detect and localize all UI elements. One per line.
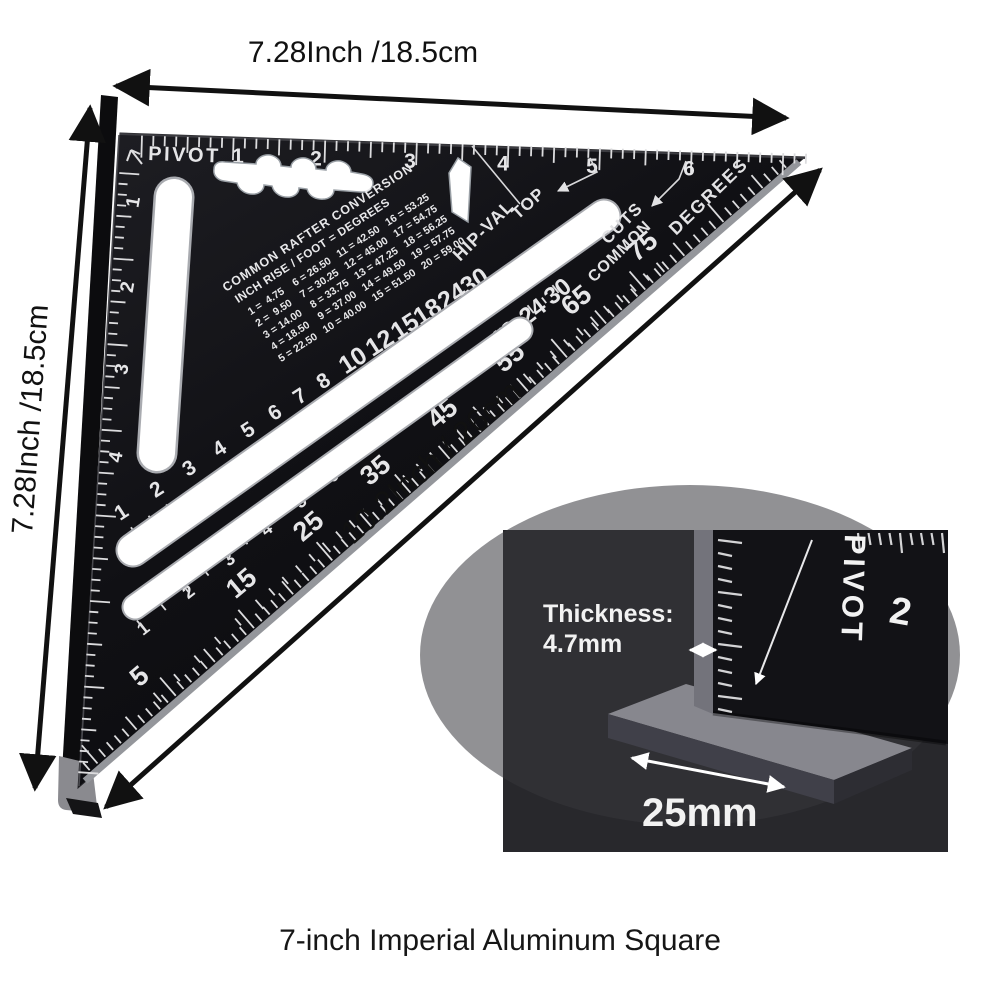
tick [108, 334, 117, 335]
tick [82, 719, 91, 720]
tick [81, 729, 96, 730]
top-ruler-number: 4 [497, 152, 509, 175]
tick [105, 387, 120, 388]
tick [92, 569, 101, 570]
thickness-value: 4.7mm [543, 630, 622, 658]
tick [104, 398, 113, 399]
tick [94, 548, 103, 549]
top-dimension-label: 7.28Inch /18.5cm [248, 36, 478, 69]
caption: 7-inch Imperial Aluminum Square [279, 924, 721, 957]
tick [141, 136, 142, 158]
tick [109, 323, 118, 324]
top-ruler-number: 6 [683, 158, 695, 181]
tick [91, 590, 100, 591]
thickness-label: Thickness: [543, 600, 674, 628]
tick [113, 269, 122, 270]
blade-face [713, 530, 948, 744]
tick [95, 526, 104, 527]
scene-svg: 123456 1234 1234567810121518243012345678… [0, 0, 1000, 1000]
left-slot [157, 197, 174, 453]
tick [91, 580, 100, 581]
tick [94, 537, 103, 538]
tick [89, 622, 98, 623]
tick [115, 237, 124, 238]
tick [87, 644, 102, 645]
tick [100, 462, 109, 463]
tick [85, 676, 94, 677]
tick [416, 143, 417, 165]
tick [116, 216, 131, 217]
tick [105, 376, 114, 377]
tick [97, 505, 106, 506]
tick [110, 312, 119, 313]
tick [79, 762, 88, 763]
tick [107, 355, 116, 356]
tick [83, 697, 92, 698]
tick [97, 494, 106, 495]
tick [103, 408, 112, 409]
tick [93, 558, 108, 559]
tick [110, 301, 125, 302]
tick [114, 248, 123, 249]
tick [118, 194, 127, 195]
tick [116, 227, 125, 228]
tick [83, 708, 92, 709]
pentagon-slot [449, 158, 471, 222]
tick [599, 148, 600, 170]
tick [88, 633, 97, 634]
width-value: 25mm [642, 791, 758, 835]
tick [119, 184, 128, 185]
tick [81, 740, 90, 741]
tick [86, 665, 95, 666]
tick [98, 483, 107, 484]
tick [86, 655, 95, 656]
inset-pivot-label: PIVOT [834, 534, 871, 645]
tick [102, 419, 111, 420]
tick [325, 141, 326, 163]
tick [89, 612, 98, 613]
tick [101, 441, 110, 442]
tick [99, 473, 114, 474]
product-image: 123456 1234 1234567810121518243012345678… [0, 0, 1000, 1000]
blade-edge-face [694, 530, 713, 714]
pivot-label: PIVOT [148, 143, 221, 168]
